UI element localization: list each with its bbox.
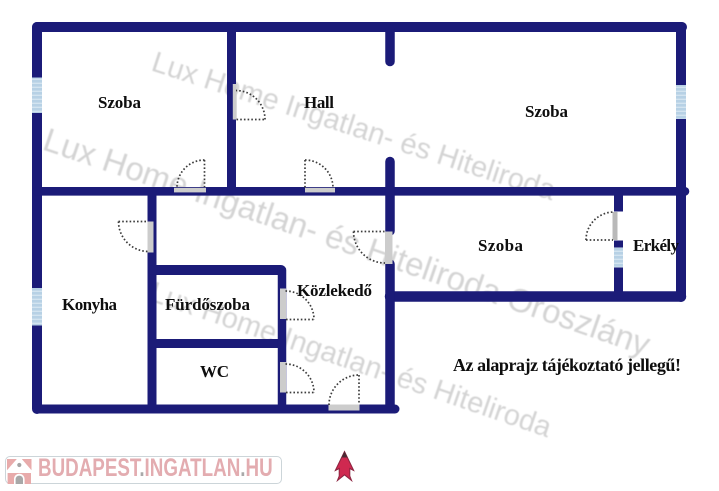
svg-text:Hall: Hall [304, 93, 334, 112]
svg-text:Az alaprajz tájékoztató jelleg: Az alaprajz tájékoztató jellegű! [453, 355, 681, 375]
svg-text:Közlekedő: Közlekedő [297, 281, 373, 300]
svg-text:Szoba: Szoba [478, 236, 524, 255]
svg-text:Fürdőszoba: Fürdőszoba [165, 295, 251, 314]
svg-text:Erkély: Erkély [633, 236, 680, 255]
svg-text:WC: WC [200, 362, 229, 381]
svg-text:Lux Home Ingatlan- és Hiteliro: Lux Home Ingatlan- és Hiteliroda Oroszlá… [39, 121, 656, 363]
svg-text:Szoba: Szoba [525, 102, 569, 121]
svg-text:Konyha: Konyha [62, 295, 118, 314]
svg-text:Szoba: Szoba [98, 93, 142, 112]
